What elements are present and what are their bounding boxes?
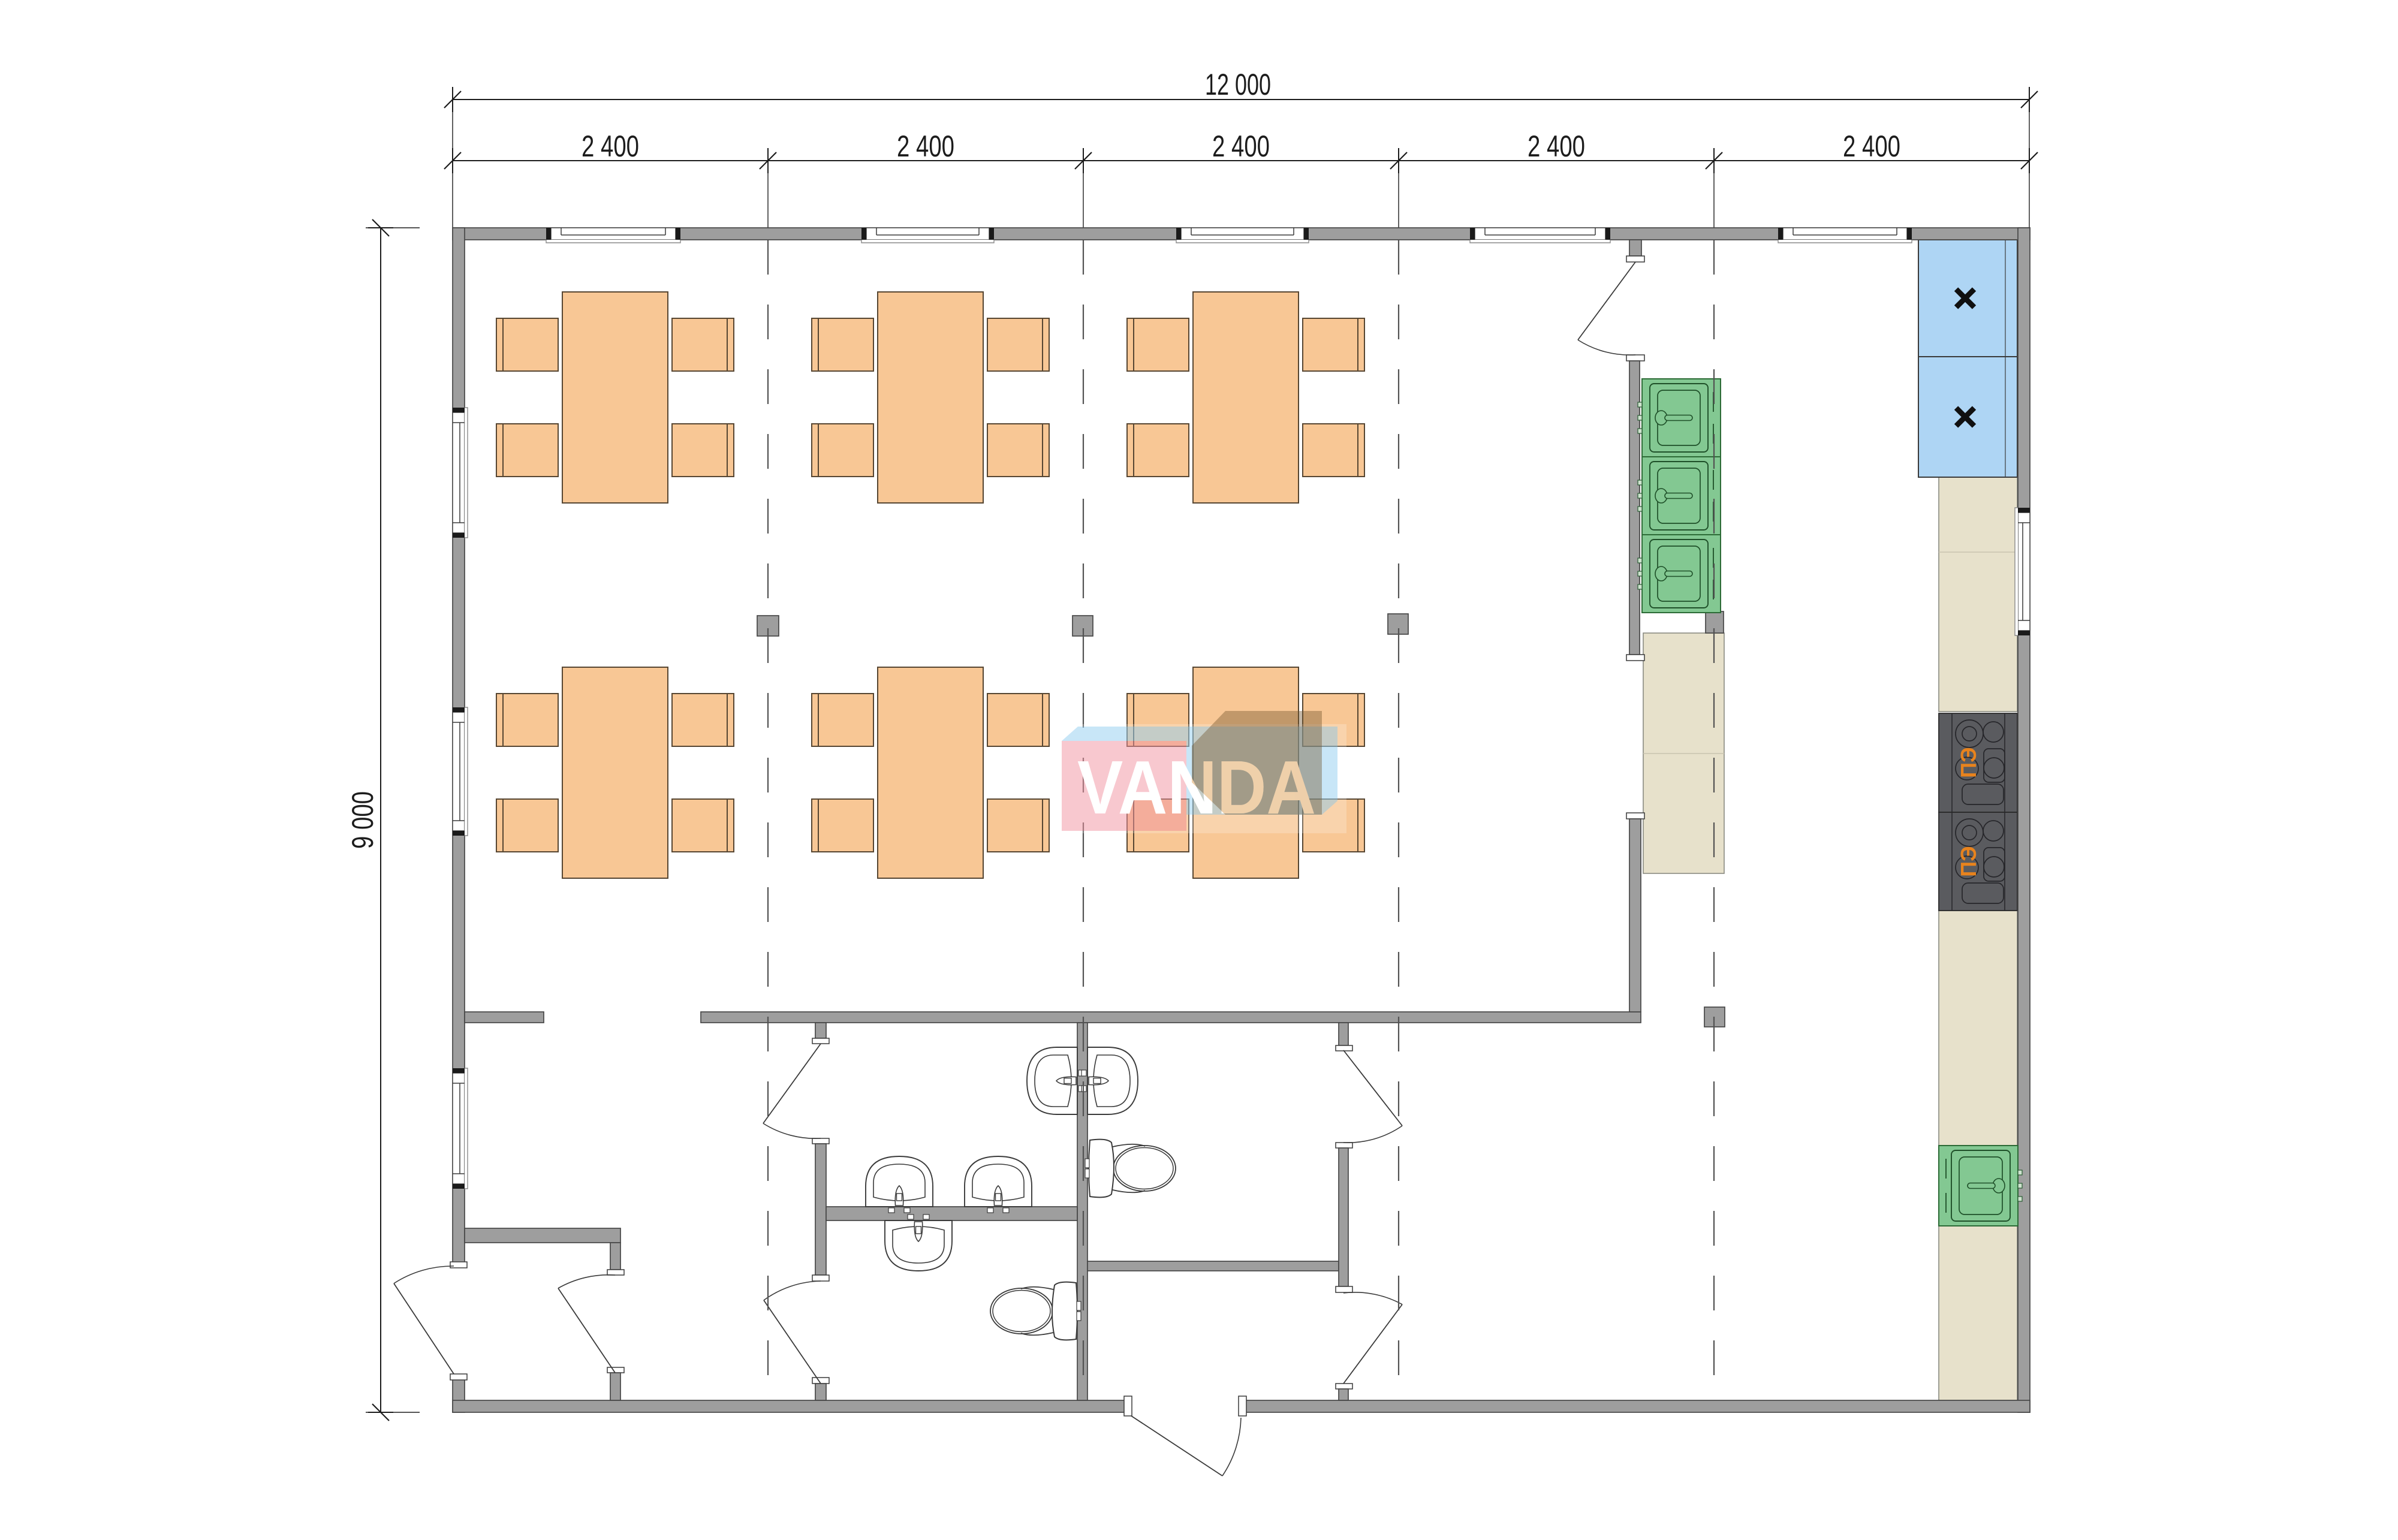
svg-text:ПЭ: ПЭ [1956, 846, 1981, 877]
svg-text:2 400: 2 400 [1212, 129, 1270, 163]
svg-text:ПЭ: ПЭ [1956, 747, 1981, 778]
svg-text:2 400: 2 400 [582, 129, 639, 163]
svg-text:2 400: 2 400 [897, 129, 954, 163]
svg-text:2 400: 2 400 [1843, 129, 1900, 163]
svg-text:2 400: 2 400 [1528, 129, 1585, 163]
svg-text:9 000: 9 000 [346, 791, 379, 849]
svg-text:12 000: 12 000 [1205, 68, 1271, 101]
